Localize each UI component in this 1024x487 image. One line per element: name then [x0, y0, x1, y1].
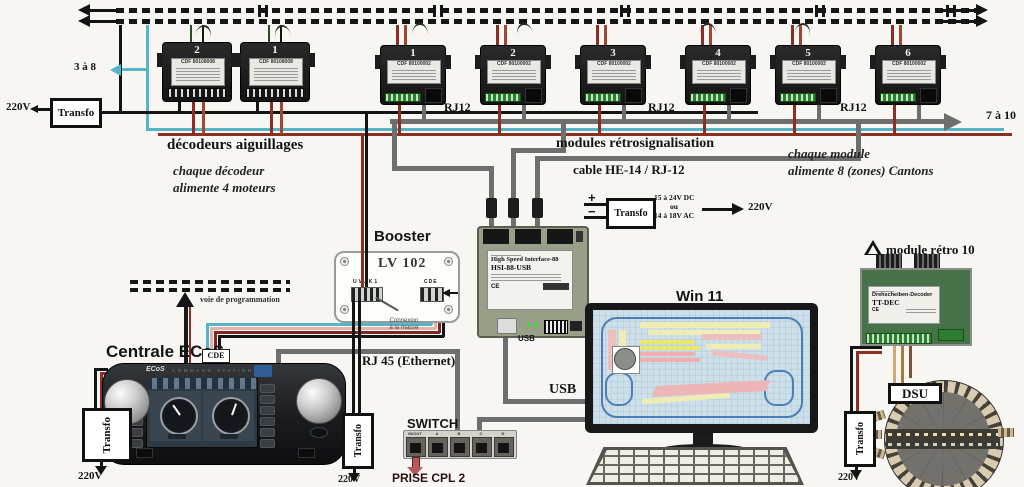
feedback-module: 2 CDF 80100002 [480, 45, 546, 105]
green-connector [938, 329, 964, 341]
screw-icon [340, 305, 349, 314]
turntable-power-wire [856, 351, 882, 354]
rail-gap-icon [822, 5, 825, 17]
gray-bus-arrow-icon [944, 113, 962, 131]
retro-note-2: alimente 8 (zones) Cantons [788, 163, 934, 179]
ecos-screen-button [220, 434, 238, 439]
s88-gray-bus [390, 119, 948, 124]
screen-track-loop [605, 372, 633, 406]
rj12-label: RJ12 [444, 100, 471, 115]
track-arrow-shaft [88, 20, 118, 23]
rj12-label: RJ12 [840, 100, 867, 115]
rj45-port [406, 437, 426, 457]
plus-sign: + [588, 190, 596, 205]
ecos-go-button [298, 448, 315, 458]
ttdec-label: Drehscheiben-Decoder TT-DEC CE [868, 286, 940, 324]
sticker-code: CDF 80100002 [783, 61, 835, 68]
rj12-label: RJ12 [648, 100, 675, 115]
module-sticker: CDF 80100002 [587, 60, 641, 84]
hsi-line-2: HSI-88-USB [491, 263, 569, 272]
transfo-label: Transfo [614, 208, 647, 219]
ce-mark: CE [872, 307, 879, 313]
or-word: ou [670, 202, 678, 211]
terminal-strip [485, 93, 521, 102]
terminal-strip [866, 333, 932, 344]
transfo-label: Transfo [855, 422, 866, 455]
cde-bundle-wire [218, 335, 444, 338]
ttdec-line-2: TT-DEC [872, 298, 936, 307]
turnout-curve-icon [412, 23, 428, 35]
booster-title: Booster [374, 228, 431, 245]
retro-feed-wire [496, 25, 499, 45]
mount-ear [840, 55, 846, 69]
port-label: D [494, 431, 512, 436]
retro-drop-wire [893, 103, 896, 134]
module-number: 3 [581, 47, 645, 59]
module-sticker: CDF 80108008 [249, 58, 303, 86]
transfo-box-turntable: Transfo [844, 411, 876, 467]
rj12-socket [625, 88, 642, 103]
dip-switch [544, 320, 568, 334]
module-number: 2 [163, 44, 231, 56]
ac-spec: 14 à 18V AC [654, 211, 694, 220]
mount-ear [235, 53, 241, 67]
track-right-arrow-icon [976, 15, 988, 27]
screen-track-block [702, 334, 762, 340]
screw-icon [444, 257, 453, 266]
sticker-code: CDF 80100002 [388, 61, 440, 68]
terminal-strip [585, 93, 621, 102]
retro-feed-wire [891, 25, 894, 45]
mains-label: 220V [78, 470, 102, 482]
ecos-button [260, 384, 275, 393]
turnout-decoder-module: 1 CDF 80108008 [240, 42, 310, 102]
mount-ear [445, 55, 451, 69]
module-sticker: CDF 80100002 [782, 60, 836, 84]
ecos-button [260, 428, 275, 437]
retro-feed-wire [504, 25, 507, 45]
module-number: 6 [876, 47, 940, 59]
ecos-cde-tag: CDE [202, 349, 230, 363]
usb-cable [503, 399, 593, 404]
decoders-note-1: chaque décodeur [173, 163, 264, 179]
mains-label: 220V [338, 474, 360, 485]
mains-arrow-shaft [38, 108, 50, 111]
rj12-plug [508, 198, 519, 218]
mains-label: 220V [6, 101, 30, 113]
booster-transfo-wire [352, 300, 355, 413]
retro-feed-wire [396, 25, 399, 45]
mains-label: 220V [748, 201, 772, 213]
sticker-fine-print [697, 69, 741, 80]
decoder-feed-wire [268, 25, 270, 42]
speed-dial [212, 397, 250, 435]
decoders-title: décodeurs aiguillages [167, 137, 303, 154]
booster-cde-block [420, 287, 444, 302]
retro-feed-wire [604, 25, 607, 45]
ground-note-2: à la masse [382, 325, 426, 331]
mount-ear [575, 55, 581, 69]
port-label: A [428, 431, 446, 436]
rj12-socket [920, 88, 937, 103]
ecos-screen-button [168, 434, 186, 439]
dsu-wire [893, 342, 896, 386]
mount-ear [770, 55, 776, 69]
transfo-box-ecos: Transfo [82, 408, 132, 462]
he14-cable [392, 124, 397, 170]
retro-feed-wire [596, 25, 599, 45]
transfo-box-booster: Transfo [342, 413, 374, 469]
turnout-decoder-module: 2 CDF 80108008 [162, 42, 232, 102]
ecos-button-column [260, 384, 275, 448]
terminal-strip [690, 93, 726, 102]
rail-gap-icon [620, 5, 623, 17]
rj12-socket [425, 88, 442, 103]
track-left-arrow-icon [78, 15, 90, 27]
retro10-label: module rétro 10 [886, 242, 975, 258]
booster-transfo-wire [358, 300, 361, 413]
ce-mark: CE [491, 284, 499, 290]
terminal-strip [880, 93, 916, 102]
sticker-code: CDF 80100002 [588, 61, 640, 68]
sticker-fine-print [392, 69, 436, 80]
hsi-connector [570, 321, 582, 331]
label-fine-print [491, 273, 561, 281]
cyan-feed-wire [146, 25, 149, 130]
feedback-module: 6 CDF 80100002 [875, 45, 941, 105]
ground-note-1: Connexion [382, 318, 426, 324]
hsi-line-1: High Speed Interface-88 [491, 256, 569, 263]
booster-track-feed [365, 112, 368, 287]
ecos-brand: ECoS [146, 366, 165, 373]
mount-ear [645, 55, 651, 69]
retro-note-1: chaque module [788, 146, 870, 162]
hsi-usb-label: USB [518, 334, 535, 343]
ecos-button [260, 395, 275, 404]
port-opening [476, 443, 487, 453]
cde-arrow-shaft [448, 292, 458, 294]
rj12-plug [486, 198, 497, 218]
screen-track-block [640, 340, 695, 344]
mount-ear [940, 55, 946, 69]
turntable-bridge [886, 429, 1000, 449]
terminal-strip [246, 88, 304, 98]
terminal-strip [385, 93, 421, 102]
rj45-port [428, 437, 448, 457]
ecos-topline: COMMAND STATION [172, 368, 253, 373]
module-number: 4 [686, 47, 750, 59]
retro-feed-wire [899, 25, 902, 45]
cable-label: cable HE-14 / RJ-12 [573, 162, 685, 178]
usb-label: USB [549, 382, 576, 398]
terminal-strip [168, 88, 226, 98]
mount-ear [157, 53, 163, 67]
rj12-plug [532, 198, 543, 218]
rj12-drop-wire [817, 103, 821, 120]
ecos-stop-button [136, 448, 153, 458]
dsu-wire [909, 342, 912, 378]
turnout-curve-icon [273, 23, 291, 38]
transfo-box-hsi: Transfo [606, 198, 656, 229]
rail-gap-icon [946, 5, 949, 17]
ecos-oval-button [310, 427, 328, 438]
minus-sign: − [588, 204, 596, 219]
rail-gap-icon [440, 5, 443, 17]
retro-drop-wire [498, 103, 501, 134]
keyboard-keys [590, 450, 800, 482]
label-logo-block [543, 283, 569, 290]
rail-gap-icon [953, 5, 956, 17]
rj45-port [472, 437, 492, 457]
sticker-fine-print [887, 69, 931, 80]
stub-track [998, 428, 1014, 437]
dial-needle [172, 405, 181, 416]
module-number: 5 [776, 47, 840, 59]
feedback-module: 4 CDF 80100002 [685, 45, 751, 105]
mount-ear [375, 55, 381, 69]
rail-gap-icon [265, 5, 268, 17]
screen-track-block [640, 322, 770, 328]
switch-title: SWITCH [407, 416, 458, 431]
usb-cable [503, 332, 508, 403]
sticker-fine-print [176, 67, 220, 81]
ecos-screen-topbar [146, 378, 256, 389]
main-track-rail-1 [116, 8, 978, 13]
bridge-track [888, 443, 998, 446]
mount-ear [680, 55, 686, 69]
triangle-marker-icon [868, 245, 878, 254]
cyan-bus [146, 128, 1004, 131]
mains-label: 220V [838, 472, 860, 483]
ecos-logo [254, 365, 272, 377]
sticker-code: CDF 80108008 [172, 59, 224, 66]
decoder-drop-wire [192, 100, 195, 134]
decoder-drop-wire [280, 100, 283, 134]
cyan-arrow-shaft [120, 68, 146, 71]
screen-track-block [640, 346, 700, 350]
module-sticker: CDF 80100002 [882, 60, 936, 84]
rail-gap-icon [627, 5, 630, 17]
retro-drop-wire [703, 103, 706, 134]
decoders-note-2: alimente 4 moteurs [173, 180, 276, 196]
dsu-wire [901, 342, 904, 386]
sticker-fine-print [492, 69, 536, 80]
speed-dial [160, 397, 198, 435]
port-label: B [450, 431, 468, 436]
transfo-label: Transfo [58, 107, 94, 119]
hsi-port [547, 229, 573, 244]
ecos-power-wire [94, 368, 97, 408]
dial-needle [231, 403, 237, 415]
screen-track-block [706, 344, 761, 349]
port-opening [454, 443, 465, 453]
retro-title: modules rétrosignalisation [556, 136, 714, 152]
ecos-button [260, 439, 275, 448]
retro-drop-wire [598, 103, 601, 134]
turnout-curve-icon [195, 23, 213, 39]
rj45-port [494, 437, 514, 457]
screw-icon [340, 257, 349, 266]
sticker-code: CDF 80100002 [883, 61, 935, 68]
turntable-power-wire [850, 346, 882, 349]
transfo-label: Transfo [101, 417, 113, 453]
screen-track-block [640, 358, 700, 362]
rj12-socket [730, 88, 747, 103]
port-opening [410, 443, 421, 453]
rj45-port [450, 437, 470, 457]
track-arrow-shaft [942, 20, 978, 23]
label-fine-print [906, 308, 936, 313]
range-left-label: 3 à 8 [74, 61, 96, 73]
mount-ear [545, 55, 551, 69]
bridge-track [888, 433, 998, 436]
programming-track-rail [130, 288, 290, 292]
rj12-drop-wire [917, 103, 921, 120]
rj12-drop-wire [622, 103, 626, 120]
module-number: 1 [241, 44, 309, 56]
booster-track-feed [361, 134, 364, 287]
rj12-drop-wire [727, 103, 731, 120]
booster-model: LV 102 [378, 256, 426, 272]
mount-ear [750, 55, 756, 69]
hsi-component [576, 231, 583, 242]
port-label: C [472, 431, 490, 436]
module-sticker: CDF 80100002 [487, 60, 541, 84]
rj12-drop-wire [522, 103, 526, 120]
cde-bundle-wire [214, 331, 440, 334]
booster-terminal-right-label: CDE [424, 279, 438, 285]
prog-track-label: voie de programmation [200, 295, 280, 304]
pc-os-label: Win 11 [676, 288, 723, 305]
sticker-fine-print [787, 69, 831, 80]
rj12-socket [820, 88, 837, 103]
rail-gap-icon [258, 5, 261, 17]
module-sticker: CDF 80100002 [692, 60, 746, 84]
mount-ear [870, 55, 876, 69]
decoder-drop-wire [202, 100, 205, 134]
turnout-curve-icon [700, 23, 716, 35]
retro-feed-wire [791, 25, 794, 45]
mount-ear [309, 53, 315, 67]
programming-track-rail [130, 280, 290, 284]
mains-left-arrow-icon [30, 105, 38, 113]
module-sticker: CDF 80108008 [171, 58, 225, 86]
sticker-fine-print [592, 69, 636, 80]
throttle-knob [296, 378, 342, 424]
terminal-strip [780, 93, 816, 102]
screen-turntable [614, 348, 636, 370]
retro-feed-wire [404, 25, 407, 45]
retro-drop-wire [398, 103, 401, 134]
he14-cable [392, 166, 494, 171]
ecos-button [260, 417, 275, 426]
wiring-diagram: 3 à 8 220V Transfo 7 à 10 2 CDF 80108008… [0, 0, 1024, 487]
usb-port [497, 318, 517, 334]
module-number: 2 [481, 47, 545, 59]
module-number: 1 [381, 47, 445, 59]
feedback-module: 3 CDF 80100002 [580, 45, 646, 105]
sticker-fine-print [254, 67, 298, 81]
screen-track-block [640, 352, 695, 356]
cpl-label: PRISE CPL 2 [392, 471, 465, 485]
sticker-code: CDF 80108008 [250, 59, 302, 66]
rj12-drop-wire [422, 103, 426, 120]
decoder-feed-wire [190, 25, 192, 42]
ethernet-cable [477, 417, 592, 422]
turntable-power-wire [856, 351, 859, 413]
rail-gap-icon [433, 5, 436, 17]
sticker-code: CDF 80100002 [693, 61, 745, 68]
led-green-icon [534, 323, 538, 327]
up-arrow-icon [176, 292, 194, 307]
feedback-module: 1 CDF 80100002 [380, 45, 446, 105]
main-track-rail-2 [116, 19, 978, 24]
decoder-drop-wire [270, 100, 273, 134]
dc-spec: 15 à 24V DC [654, 193, 695, 202]
cyan-left-arrow-icon [110, 64, 121, 76]
rj12-socket [525, 88, 542, 103]
led-green-icon [527, 323, 531, 327]
dsu-box: DSU [888, 383, 942, 404]
screw-icon [444, 305, 453, 314]
turntable-power-wire [850, 346, 853, 413]
port-opening [498, 443, 509, 453]
module-sticker: CDF 80100002 [387, 60, 441, 84]
port-opening [432, 443, 443, 453]
sticker-code: CDF 80100002 [488, 61, 540, 68]
track-arrow-shaft [88, 9, 118, 12]
arrow-shaft [702, 208, 734, 211]
rail-gap-icon [815, 5, 818, 17]
retro-drop-wire [793, 103, 796, 134]
mount-ear [475, 55, 481, 69]
transfo-label: Transfo [353, 424, 364, 457]
screen-track-loop [764, 370, 794, 406]
transfo-box-decoders: Transfo [50, 98, 102, 128]
port-label: IN/OUT [406, 431, 424, 436]
rj45-label: RJ 45 (Ethernet) [362, 353, 455, 369]
right-arrow-icon [732, 203, 744, 215]
feedback-module: 5 CDF 80100002 [775, 45, 841, 105]
hsi-port [483, 229, 509, 244]
range-right-label: 7 à 10 [986, 108, 1016, 123]
hsi-label: High Speed Interface-88 HSI-88-USB CE [487, 250, 573, 310]
hsi-port [515, 229, 541, 244]
ecos-button [260, 406, 275, 415]
